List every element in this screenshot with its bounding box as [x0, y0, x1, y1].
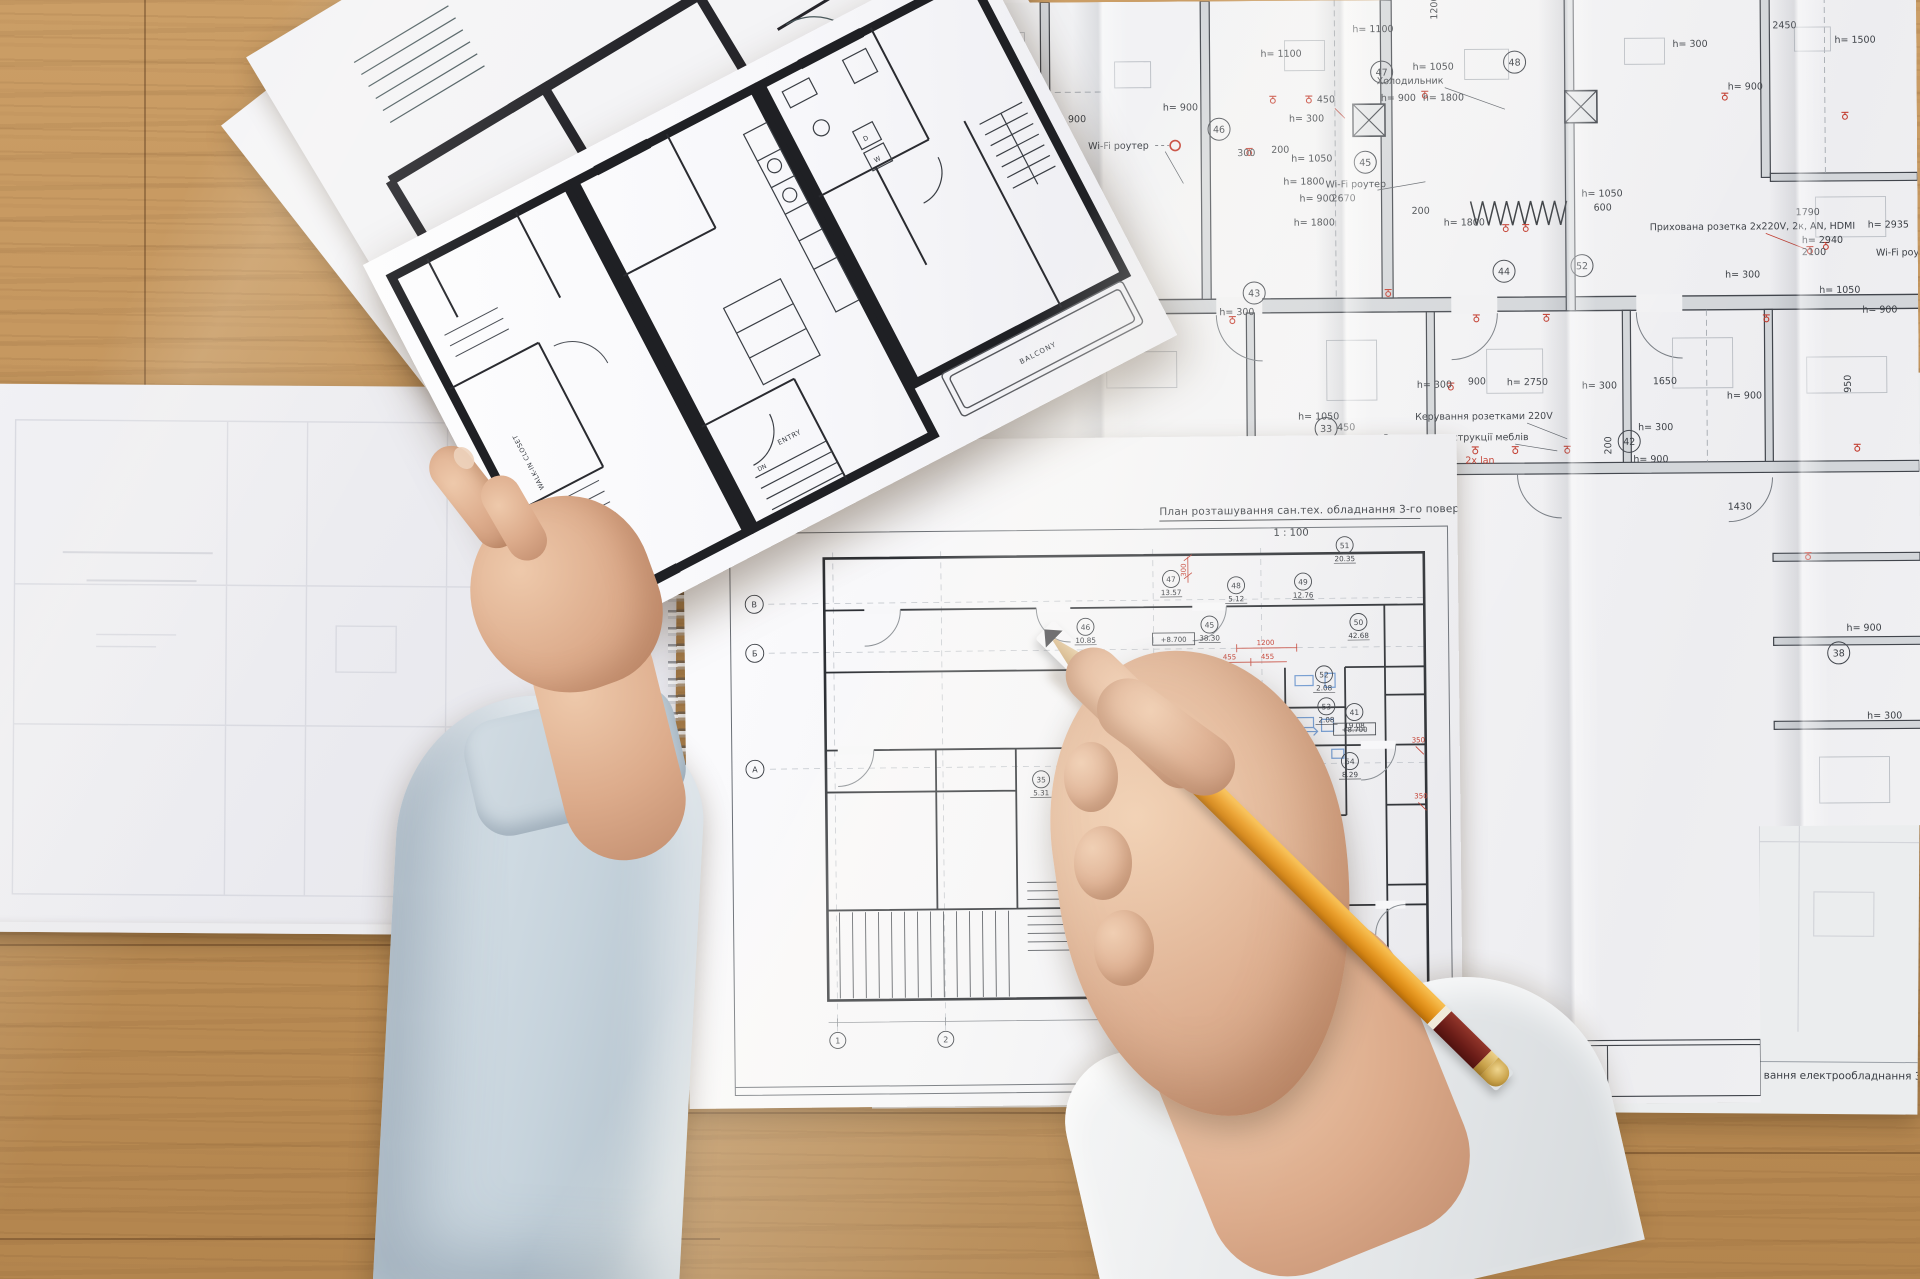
svg-text:13.57: 13.57 — [1161, 588, 1182, 597]
svg-text:600: 600 — [1594, 202, 1612, 213]
wifi-router-symbol — [1170, 140, 1180, 150]
svg-text:+8.700: +8.700 — [1161, 636, 1187, 644]
right-knuckle — [1074, 826, 1132, 900]
svg-text:2: 2 — [943, 1035, 948, 1044]
svg-text:38.30: 38.30 — [1199, 633, 1220, 642]
svg-text:h= 900: h= 900 — [1381, 93, 1416, 104]
svg-text:1430: 1430 — [1728, 502, 1752, 513]
svg-text:42: 42 — [1623, 437, 1635, 448]
svg-text:200: 200 — [1603, 436, 1614, 454]
svg-text:52: 52 — [1319, 670, 1329, 679]
svg-text:350: 350 — [1414, 792, 1427, 800]
right-knuckle — [1094, 910, 1154, 986]
svg-text:51: 51 — [1340, 541, 1350, 550]
svg-text:1: 1 — [835, 1036, 840, 1045]
svg-text:h= 900: h= 900 — [1727, 390, 1762, 401]
svg-text:300: 300 — [1237, 148, 1255, 159]
svg-text:h= 2935: h= 2935 — [1868, 219, 1909, 230]
svg-text:h= 1050: h= 1050 — [1413, 62, 1454, 73]
svg-text:41: 41 — [1350, 708, 1360, 717]
svg-text:200: 200 — [1271, 145, 1289, 156]
svg-text:20.35: 20.35 — [1334, 554, 1355, 563]
svg-text:300: 300 — [1180, 563, 1188, 576]
desk-photo: вання електрообладнання 3-го — [0, 0, 1920, 1279]
svg-text:h= 300: h= 300 — [1867, 710, 1902, 721]
back-sheet-footer: вання електрообладнання 3-го — [1764, 1070, 1920, 1083]
svg-text:5.31: 5.31 — [1033, 788, 1049, 797]
svg-text:2x lan: 2x lan — [1465, 455, 1494, 466]
svg-text:44: 44 — [1498, 267, 1510, 278]
balcony-label: BALCONY — [1018, 340, 1058, 366]
svg-text:1650: 1650 — [1653, 376, 1677, 387]
svg-text:35: 35 — [1036, 775, 1046, 784]
svg-text:50: 50 — [1354, 618, 1364, 627]
svg-text:h= 900: h= 900 — [1847, 623, 1882, 634]
svg-text:1200: 1200 — [1257, 639, 1275, 647]
svg-text:Wi-Fi роутер: Wi-Fi роутер — [1876, 247, 1920, 258]
svg-text:46: 46 — [1213, 125, 1225, 136]
svg-text:54: 54 — [1345, 757, 1355, 766]
svg-text:5.12: 5.12 — [1228, 594, 1244, 603]
svg-text:53: 53 — [1322, 702, 1332, 711]
svg-text:48: 48 — [1231, 581, 1241, 590]
svg-text:38: 38 — [1833, 648, 1845, 659]
svg-text:10.85: 10.85 — [1075, 636, 1096, 645]
svg-text:h= 900: h= 900 — [1163, 102, 1198, 113]
svg-text:1200: 1200 — [1429, 0, 1440, 20]
svg-text:46: 46 — [1081, 623, 1091, 632]
svg-text:h= 300: h= 300 — [1725, 269, 1760, 280]
svg-text:h= 300: h= 300 — [1672, 39, 1707, 50]
dryer-label: D — [862, 134, 870, 143]
svg-text:900: 900 — [1468, 376, 1486, 387]
svg-text:48: 48 — [1509, 58, 1521, 69]
svg-text:h= 300: h= 300 — [1417, 380, 1452, 391]
svg-text:200: 200 — [1412, 206, 1430, 217]
svg-text:h= 1500: h= 1500 — [1834, 35, 1875, 46]
svg-text:45: 45 — [1205, 621, 1215, 630]
svg-text:8.29: 8.29 — [1342, 770, 1359, 779]
paper-fold-crease — [1538, 0, 1602, 1104]
svg-text:950: 950 — [1843, 375, 1854, 393]
entry-label: ENTRY — [776, 428, 803, 447]
plan-title: План розташування сан.тех. обладнання 3-… — [1159, 503, 1463, 518]
svg-text:350: 350 — [1412, 736, 1425, 744]
svg-text:h= 900: h= 900 — [1862, 304, 1897, 315]
svg-text:12.76: 12.76 — [1293, 590, 1314, 599]
washer-label: W — [873, 154, 883, 164]
svg-text:Керування розетками 220V: Керування розетками 220V — [1415, 411, 1553, 423]
svg-text:2.08: 2.08 — [1316, 683, 1333, 692]
svg-text:h= 1800: h= 1800 — [1423, 93, 1464, 104]
svg-text:h= 1100: h= 1100 — [1260, 49, 1301, 60]
svg-text:43: 43 — [1248, 288, 1260, 299]
svg-text:h= 300: h= 300 — [1219, 307, 1254, 318]
right-knuckle — [1064, 742, 1118, 812]
svg-text:47: 47 — [1166, 575, 1176, 584]
svg-text:42.68: 42.68 — [1348, 631, 1369, 640]
svg-text:Холодильник: Холодильник — [1377, 76, 1444, 87]
svg-text:Б: Б — [752, 649, 758, 658]
plan-scale: 1 : 100 — [1273, 528, 1308, 539]
svg-text:h= 300: h= 300 — [1638, 422, 1673, 433]
svg-text:А: А — [752, 765, 758, 774]
svg-text:2.08: 2.08 — [1318, 715, 1335, 724]
svg-text:+8.700: +8.700 — [1342, 726, 1368, 734]
svg-text:49: 49 — [1298, 578, 1308, 587]
svg-text:h= 900: h= 900 — [1633, 454, 1668, 465]
svg-text:В: В — [751, 600, 757, 609]
svg-text:455: 455 — [1261, 653, 1274, 661]
svg-text:h= 1800: h= 1800 — [1444, 217, 1485, 228]
wood-plank-seam — [0, 944, 392, 946]
wood-plank-seam — [144, 0, 146, 398]
svg-text:h= 900: h= 900 — [1728, 81, 1763, 92]
